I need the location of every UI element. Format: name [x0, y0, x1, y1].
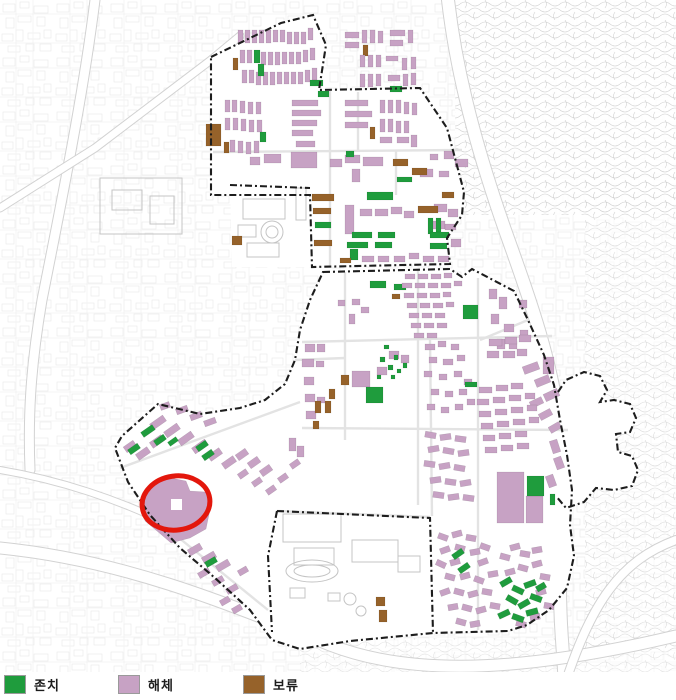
building-p: [257, 120, 262, 132]
building-p: [292, 120, 317, 126]
demolish-swatch: [118, 675, 140, 694]
building-b: [312, 194, 334, 201]
building-p: [415, 283, 425, 288]
building-p: [499, 297, 507, 309]
building-p: [499, 433, 511, 439]
building-p: [233, 118, 238, 130]
building-p: [345, 205, 354, 234]
building-g: [403, 363, 407, 368]
building-p: [242, 70, 247, 83]
building-g: [391, 375, 395, 379]
building-p: [368, 74, 373, 87]
building-p: [338, 300, 345, 306]
building-p: [504, 324, 514, 332]
building-p: [292, 100, 318, 106]
building-p: [445, 478, 457, 485]
building-g: [367, 192, 393, 200]
building-p: [305, 70, 310, 82]
building-b: [325, 401, 331, 413]
map-canvas: [0, 0, 676, 672]
building-p: [377, 367, 387, 375]
building-p: [287, 32, 292, 44]
building-p: [448, 209, 458, 217]
building-p: [438, 256, 449, 262]
building-b: [206, 124, 221, 146]
building-p: [378, 256, 389, 262]
building-p: [458, 449, 470, 456]
building-p: [479, 411, 491, 417]
building-p: [407, 303, 417, 308]
hold-swatch: [243, 675, 265, 694]
building-p: [273, 30, 278, 42]
building-p: [513, 419, 525, 425]
preserve-swatch: [4, 675, 26, 694]
building-p: [443, 359, 453, 365]
building-p: [345, 111, 372, 117]
building-p: [489, 339, 502, 346]
building-g: [346, 151, 354, 157]
building-g: [375, 242, 392, 248]
legend: 존치 해체 보류: [0, 672, 676, 700]
building-g: [397, 177, 412, 182]
building-g: [352, 232, 372, 238]
building-p: [529, 417, 539, 423]
building-p: [454, 281, 462, 286]
building-g: [315, 222, 331, 228]
building-p: [256, 102, 261, 114]
building-p: [441, 283, 451, 288]
building-p: [296, 141, 315, 147]
building-p: [420, 303, 430, 308]
building-p: [497, 421, 509, 427]
building-p: [408, 30, 413, 43]
building-p: [467, 399, 475, 405]
building-p: [487, 351, 499, 358]
building-p: [292, 130, 313, 136]
building-g: [254, 50, 260, 63]
building-p: [412, 103, 417, 115]
building-p: [225, 100, 230, 112]
building-p: [284, 72, 289, 84]
building-p: [501, 445, 513, 451]
building-g: [318, 91, 329, 97]
building-b: [224, 142, 229, 153]
building-p: [497, 472, 524, 523]
building-p: [380, 137, 392, 143]
building-b: [314, 240, 332, 246]
building-p: [438, 341, 446, 347]
building-p: [225, 118, 230, 130]
building-p: [483, 435, 495, 441]
building-p: [525, 393, 535, 399]
building-p: [241, 119, 246, 131]
building-p: [303, 50, 308, 62]
building-p: [491, 314, 499, 324]
building-p: [305, 394, 315, 402]
building-p: [485, 447, 497, 453]
building-p: [345, 122, 368, 128]
building-p: [352, 299, 360, 305]
building-p: [511, 407, 523, 413]
building-p: [411, 323, 421, 328]
building-p: [519, 335, 531, 342]
building-p: [517, 349, 527, 356]
building-g: [430, 232, 449, 238]
building-p: [240, 50, 245, 63]
building-p: [254, 141, 259, 153]
building-g: [378, 232, 395, 238]
building-p: [317, 344, 325, 352]
building-g: [384, 345, 389, 349]
building-p: [481, 423, 493, 429]
building-g: [347, 242, 368, 248]
building-p: [360, 74, 365, 87]
building-p: [289, 438, 296, 451]
building-g: [527, 476, 544, 496]
building-b: [341, 375, 349, 385]
building-p: [424, 323, 434, 328]
building-p: [433, 491, 445, 498]
building-p: [360, 209, 372, 216]
building-b: [363, 45, 368, 56]
building-p: [270, 72, 275, 85]
building-p: [405, 274, 415, 279]
building-b: [370, 127, 375, 139]
building-p: [423, 256, 434, 262]
building-p: [526, 496, 543, 523]
building-p: [509, 395, 521, 401]
building-p: [457, 355, 465, 361]
highlighted-building-blob: [171, 499, 182, 510]
building-p: [361, 307, 369, 313]
building-p: [298, 72, 303, 84]
building-p: [411, 135, 417, 147]
building-p: [289, 52, 294, 64]
building-p: [249, 70, 254, 83]
preserve-label: 존치: [34, 675, 60, 694]
building-p: [411, 57, 416, 69]
building-p: [264, 154, 281, 163]
building-b: [392, 294, 400, 299]
building-p: [296, 52, 301, 64]
building-p: [437, 323, 447, 328]
building-p: [503, 351, 515, 358]
building-p: [360, 55, 365, 67]
building-p: [427, 333, 437, 338]
building-p: [409, 313, 419, 318]
building-b: [340, 258, 351, 263]
building-b: [412, 168, 427, 175]
building-p: [302, 359, 314, 367]
building-p: [316, 361, 324, 367]
building-g: [258, 64, 264, 76]
building-p: [404, 293, 414, 298]
building-p: [430, 154, 438, 160]
building-p: [495, 409, 507, 415]
building-p: [248, 102, 253, 114]
building-p: [505, 337, 517, 344]
building-p: [431, 389, 439, 395]
building-p: [439, 374, 447, 380]
building-g: [436, 218, 441, 234]
building-b: [442, 192, 454, 198]
building-p: [376, 74, 381, 86]
building-p: [312, 68, 317, 80]
building-p: [305, 344, 315, 352]
building-p: [232, 100, 237, 112]
building-p: [441, 407, 449, 413]
building-p: [352, 169, 360, 182]
building-p: [401, 355, 409, 363]
building-p: [439, 171, 449, 177]
building-p: [444, 273, 452, 278]
building-b: [329, 389, 335, 399]
building-p: [409, 253, 419, 259]
building-p: [435, 313, 445, 318]
building-p: [349, 314, 355, 324]
building-p: [268, 52, 273, 65]
building-p: [308, 28, 313, 40]
building-p: [386, 56, 398, 61]
building-p: [394, 256, 405, 262]
building-p: [414, 333, 424, 338]
building-p: [397, 137, 409, 143]
building-p: [247, 50, 252, 63]
building-p: [378, 31, 383, 43]
building-b: [393, 159, 408, 166]
building-p: [422, 313, 432, 318]
building-p: [424, 460, 436, 467]
building-p: [306, 411, 316, 419]
building-g: [260, 132, 266, 142]
building-b: [379, 610, 387, 622]
building-p: [479, 387, 492, 393]
building-p: [404, 211, 414, 218]
building-p: [390, 30, 405, 36]
building-p: [294, 32, 299, 44]
building-p: [280, 30, 285, 42]
building-p: [388, 100, 393, 113]
building-p: [396, 121, 401, 133]
building-p: [424, 371, 432, 377]
building-p: [527, 405, 537, 411]
legend-item-preserve: 존치: [4, 675, 60, 694]
building-p: [345, 100, 368, 106]
legend-item-hold: 보류: [243, 675, 299, 694]
building-g: [397, 369, 401, 373]
building-g: [465, 382, 477, 387]
building-p: [448, 493, 460, 500]
building-p: [390, 40, 403, 46]
building-p: [277, 72, 282, 84]
building-p: [428, 283, 438, 288]
building-p: [345, 32, 359, 38]
building-p: [455, 435, 467, 442]
building-p: [433, 303, 443, 308]
building-p: [493, 397, 505, 403]
building-p: [404, 121, 409, 133]
building-p: [391, 207, 402, 214]
building-p: [496, 385, 508, 391]
building-p: [240, 101, 245, 113]
building-p: [363, 157, 383, 166]
building-p: [403, 74, 408, 86]
building-p: [368, 55, 373, 67]
building-p: [352, 371, 370, 387]
building-g: [550, 494, 555, 505]
building-p: [443, 292, 451, 297]
map-wrap: [0, 0, 676, 672]
building-g: [430, 243, 447, 249]
building-p: [445, 391, 453, 397]
building-g: [350, 249, 358, 260]
building-p: [446, 302, 454, 307]
building-p: [430, 476, 442, 483]
building-g: [394, 355, 398, 360]
building-p: [370, 30, 375, 43]
building-p: [454, 371, 462, 377]
building-p: [380, 119, 385, 132]
building-p: [266, 30, 271, 43]
building-b: [232, 236, 242, 245]
building-p: [388, 119, 393, 132]
building-p: [396, 100, 401, 113]
building-b: [376, 597, 385, 606]
building-g: [380, 357, 385, 362]
building-g: [463, 305, 478, 319]
building-p: [291, 152, 317, 168]
building-p: [249, 120, 254, 132]
building-p: [282, 52, 287, 64]
building-b: [313, 208, 331, 214]
building-b: [418, 206, 438, 213]
building-g: [366, 387, 383, 403]
building-p: [388, 75, 400, 81]
building-p: [362, 256, 374, 262]
building-p: [417, 293, 427, 298]
building-p: [345, 42, 359, 48]
building-b: [313, 421, 319, 429]
building-p: [431, 274, 441, 279]
building-p: [402, 283, 412, 288]
building-p: [330, 159, 342, 167]
building-p: [275, 52, 280, 65]
building-p: [230, 140, 235, 152]
building-p: [297, 446, 304, 457]
building-p: [238, 141, 243, 153]
building-p: [477, 399, 489, 405]
demolish-label: 해체: [148, 675, 174, 694]
building-p: [455, 404, 463, 410]
building-p: [362, 30, 367, 43]
building-p: [250, 157, 260, 165]
building-g: [428, 218, 433, 234]
building-p: [463, 494, 475, 501]
building-p: [418, 274, 428, 279]
building-p: [291, 72, 296, 84]
building-p: [411, 73, 416, 85]
building-p: [375, 209, 388, 216]
building-p: [451, 239, 461, 247]
building-b: [315, 401, 321, 413]
building-p: [402, 58, 407, 70]
building-p: [301, 32, 306, 44]
building-p: [511, 383, 523, 389]
building-p: [451, 344, 459, 350]
building-p: [459, 389, 467, 395]
building-p: [429, 357, 437, 363]
building-p: [304, 377, 314, 385]
building-g: [377, 375, 381, 379]
building-p: [292, 110, 321, 116]
building-p: [245, 30, 250, 43]
legend-item-demolish: 해체: [118, 675, 174, 694]
hold-label: 보류: [273, 675, 299, 694]
building-p: [517, 443, 529, 449]
building-g: [370, 281, 386, 288]
building-g: [388, 365, 393, 370]
building-p: [380, 100, 385, 113]
building-p: [404, 102, 409, 114]
building-p: [515, 431, 527, 437]
building-b: [233, 58, 238, 70]
building-p: [489, 289, 497, 299]
building-p: [425, 344, 435, 350]
building-p: [261, 52, 266, 65]
building-p: [376, 55, 381, 67]
building-p: [246, 142, 251, 154]
building-p: [440, 433, 452, 440]
urban-renewal-map-page: 존치 해체 보류: [0, 0, 676, 700]
building-p: [430, 293, 440, 298]
building-p: [427, 404, 435, 410]
building-p: [310, 48, 315, 60]
